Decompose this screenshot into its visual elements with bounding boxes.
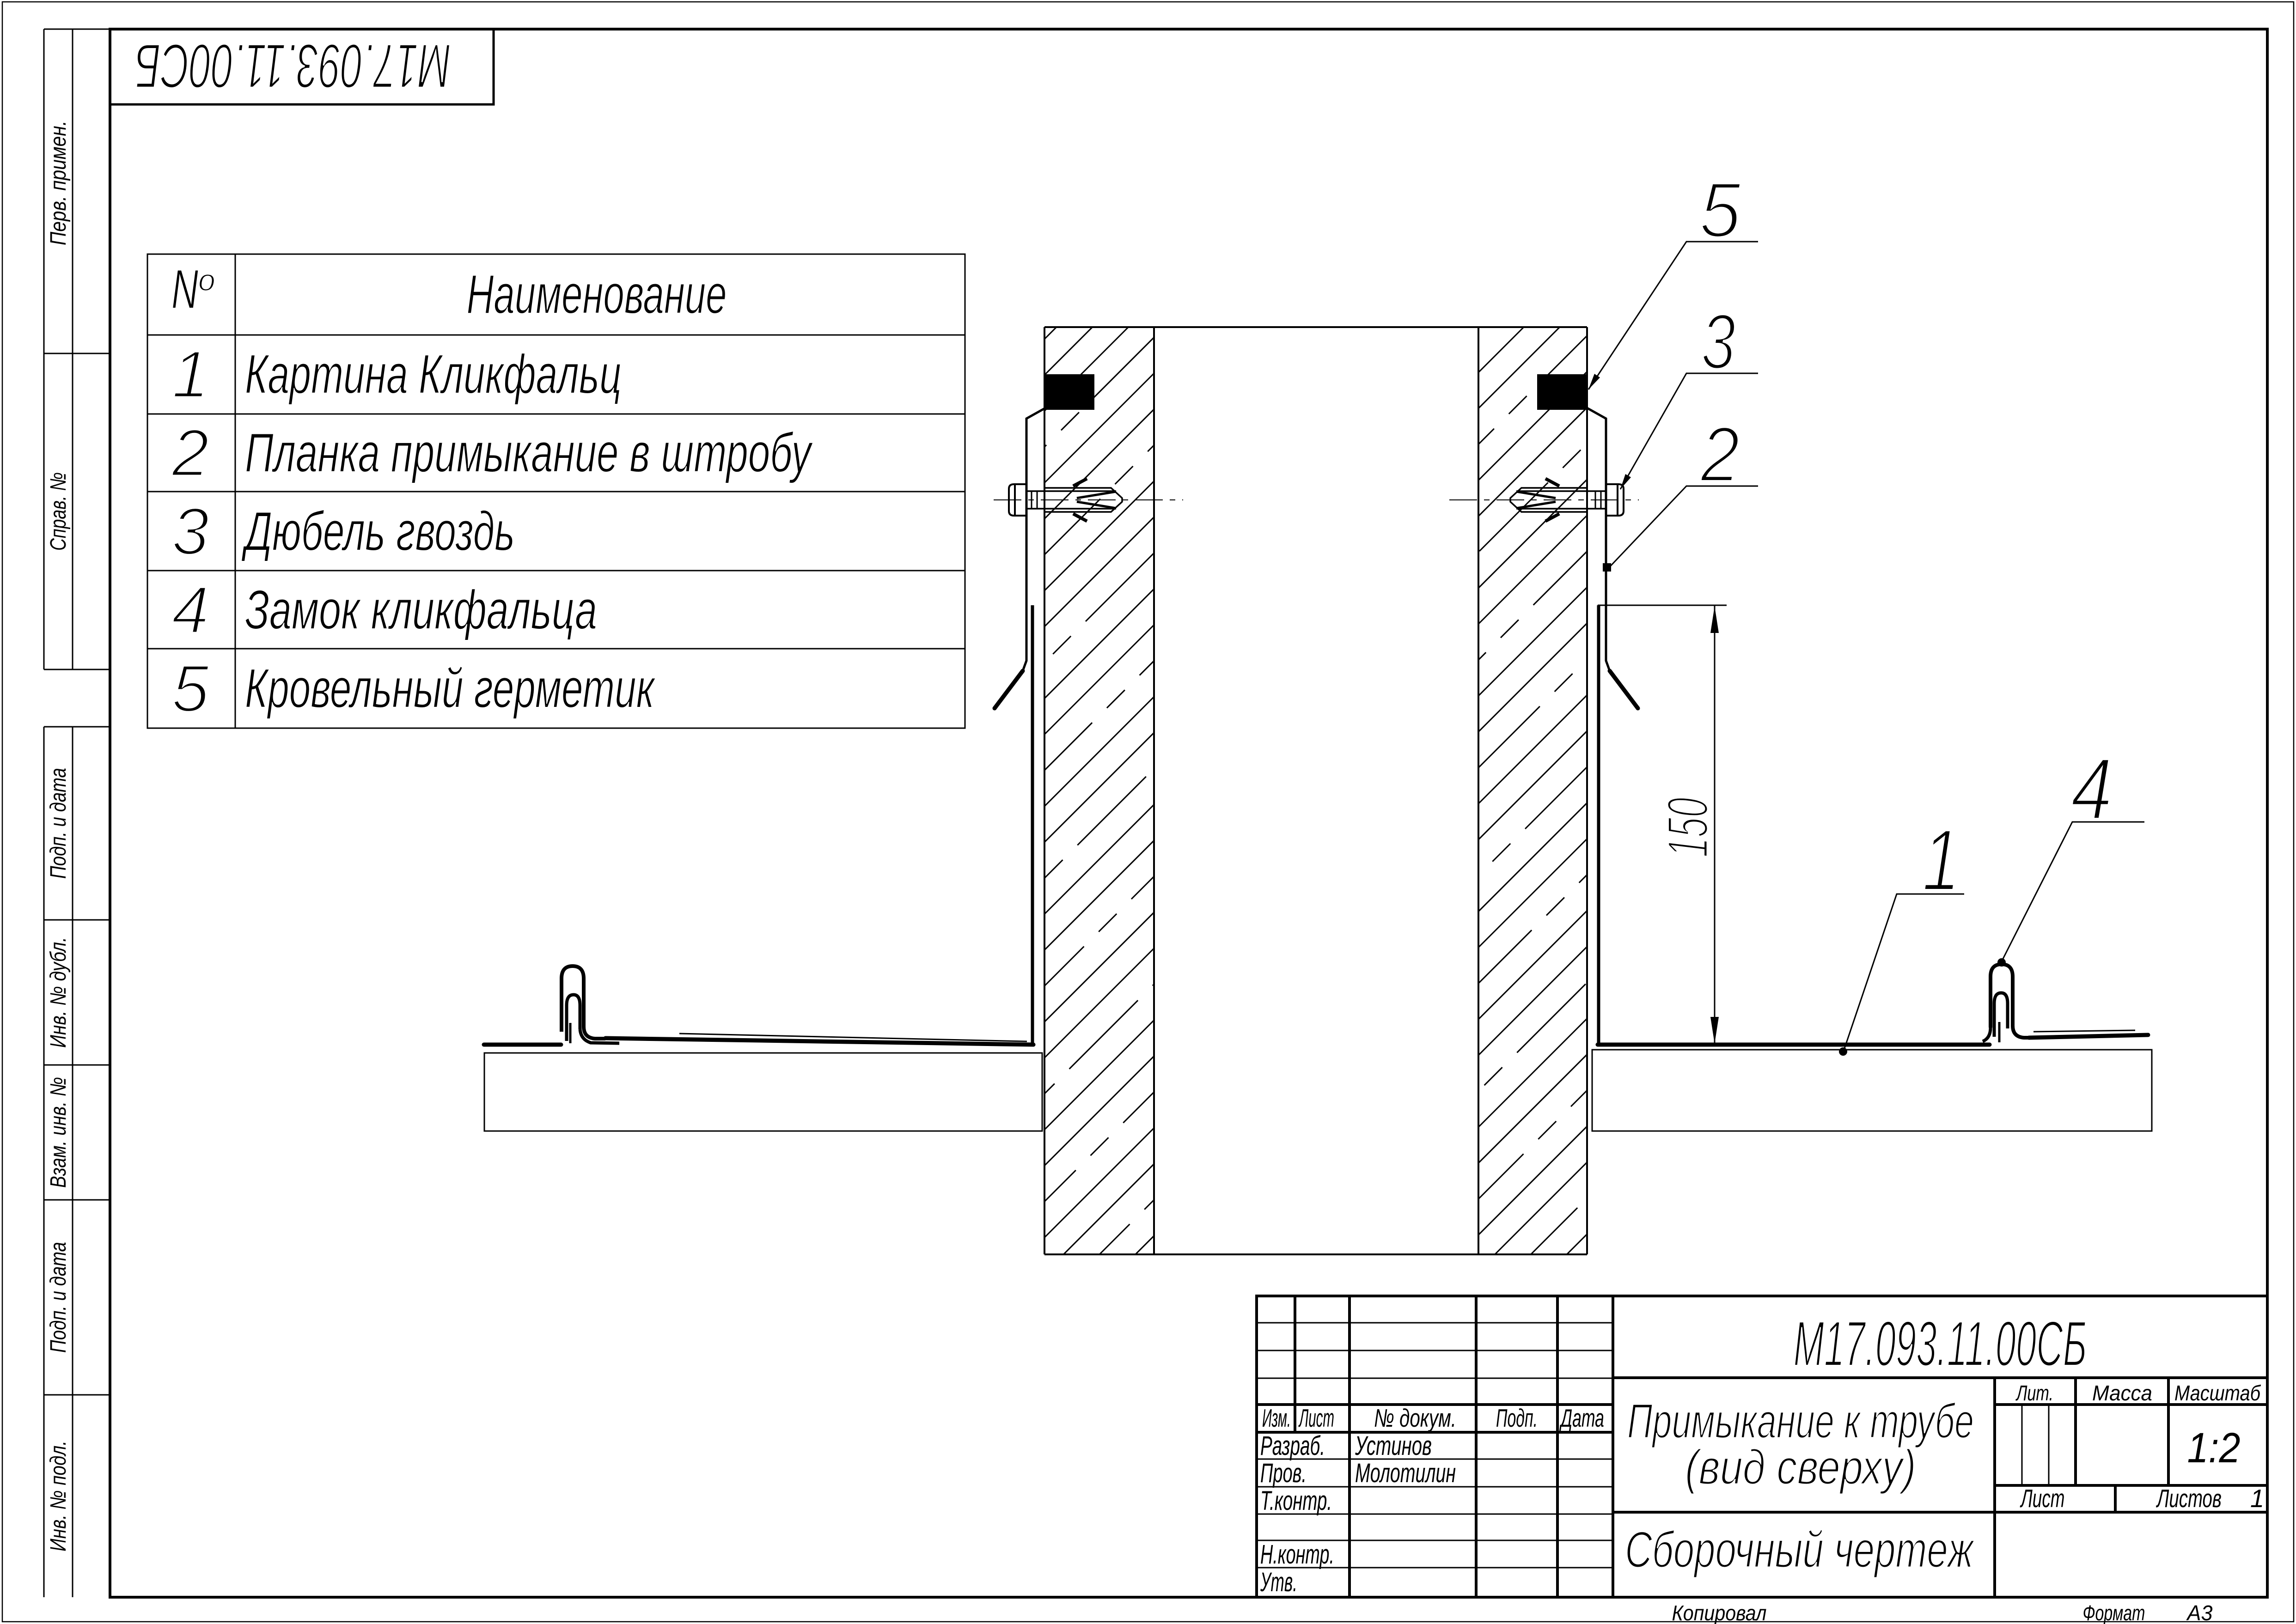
svg-text:N: N (171, 258, 198, 320)
svg-text:5: 5 (1699, 166, 1741, 254)
svg-text:А3: А3 (2186, 1601, 2213, 1624)
svg-text:Разраб.: Разраб. (1260, 1431, 1325, 1461)
svg-text:Дата: Дата (1559, 1404, 1604, 1432)
svg-text:1: 1 (172, 337, 209, 412)
svg-text:Подп. и дата: Подп. и дата (46, 768, 71, 879)
svg-text:Кровельный герметик: Кровельный герметик (245, 657, 656, 719)
svg-text:Масса: Масса (2092, 1381, 2152, 1405)
svg-text:Утв.: Утв. (1260, 1567, 1297, 1597)
svg-text:150: 150 (1656, 797, 1720, 858)
svg-text:Масштаб: Масштаб (2174, 1381, 2261, 1405)
svg-text:1: 1 (2250, 1484, 2264, 1513)
svg-text:3: 3 (172, 494, 209, 569)
svg-text:Т.контр.: Т.контр. (1260, 1486, 1332, 1516)
svg-text:№ докум.: № докум. (1374, 1404, 1456, 1432)
svg-text:Замок кликфальца: Замок кликфальца (245, 579, 597, 641)
svg-text:Картина Кликфальц: Картина Кликфальц (245, 343, 622, 405)
svg-text:Наименование: Наименование (467, 263, 727, 325)
svg-text:Справ. №: Справ. № (46, 472, 71, 551)
svg-text:4: 4 (2071, 740, 2113, 838)
svg-text:Устинов: Устинов (1355, 1431, 1432, 1461)
svg-text:Инв. № подл.: Инв. № подл. (46, 1441, 71, 1551)
svg-text:Лит.: Лит. (2015, 1381, 2053, 1405)
svg-text:Копировал: Копировал (1672, 1601, 1767, 1624)
svg-text:Н.контр.: Н.контр. (1260, 1539, 1334, 1569)
svg-text:Дюбель гвоздь: Дюбель гвоздь (241, 500, 515, 562)
svg-text:(вид сверху): (вид сверху) (1685, 1440, 1916, 1495)
svg-text:Сборочный чертеж: Сборочный чертеж (1625, 1521, 1975, 1578)
svg-text:Изм.: Изм. (1262, 1404, 1291, 1432)
svg-text:Планка примыкание в штробу: Планка примыкание в штробу (245, 422, 813, 484)
svg-text:Подп.: Подп. (1496, 1404, 1538, 1432)
svg-text:М17.093.11.00СБ: М17.093.11.00СБ (135, 31, 451, 101)
svg-text:o: o (198, 263, 215, 297)
svg-text:4: 4 (172, 572, 209, 647)
svg-text:2: 2 (1700, 411, 1740, 499)
svg-text:Лист: Лист (2020, 1484, 2064, 1513)
svg-text:Подп. и дата: Подп. и дата (46, 1242, 71, 1353)
svg-text:1:2: 1:2 (2187, 1424, 2241, 1472)
svg-text:Листов: Листов (2156, 1484, 2222, 1513)
svg-text:Взам. инв. №: Взам. инв. № (46, 1077, 71, 1188)
svg-text:1: 1 (1922, 811, 1960, 909)
svg-text:М17.093.11.00СБ: М17.093.11.00СБ (1794, 1308, 2087, 1380)
svg-text:3: 3 (1701, 298, 1736, 386)
svg-text:2: 2 (171, 415, 209, 490)
svg-text:Инв. № дубл.: Инв. № дубл. (46, 937, 71, 1048)
svg-text:Пров.: Пров. (1260, 1458, 1307, 1488)
svg-text:Формат: Формат (2083, 1601, 2145, 1624)
svg-text:Молотилин: Молотилин (1355, 1458, 1456, 1488)
svg-text:Лист: Лист (1298, 1404, 1334, 1432)
svg-text:Перв. примен.: Перв. примен. (46, 121, 71, 245)
svg-text:5: 5 (172, 651, 209, 726)
